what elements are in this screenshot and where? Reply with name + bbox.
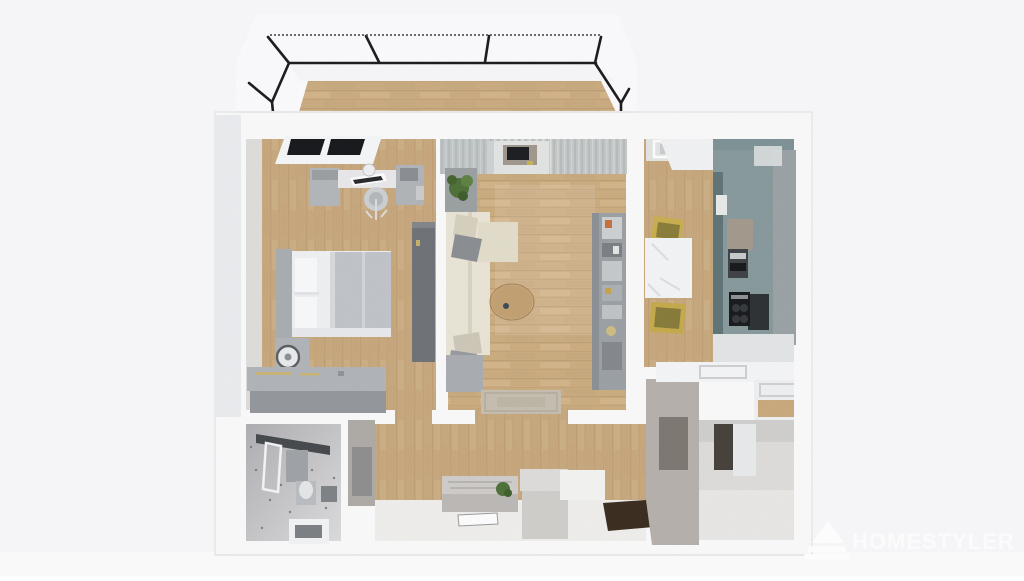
svg-text:HOMESTYLER: HOMESTYLER	[852, 529, 1015, 554]
